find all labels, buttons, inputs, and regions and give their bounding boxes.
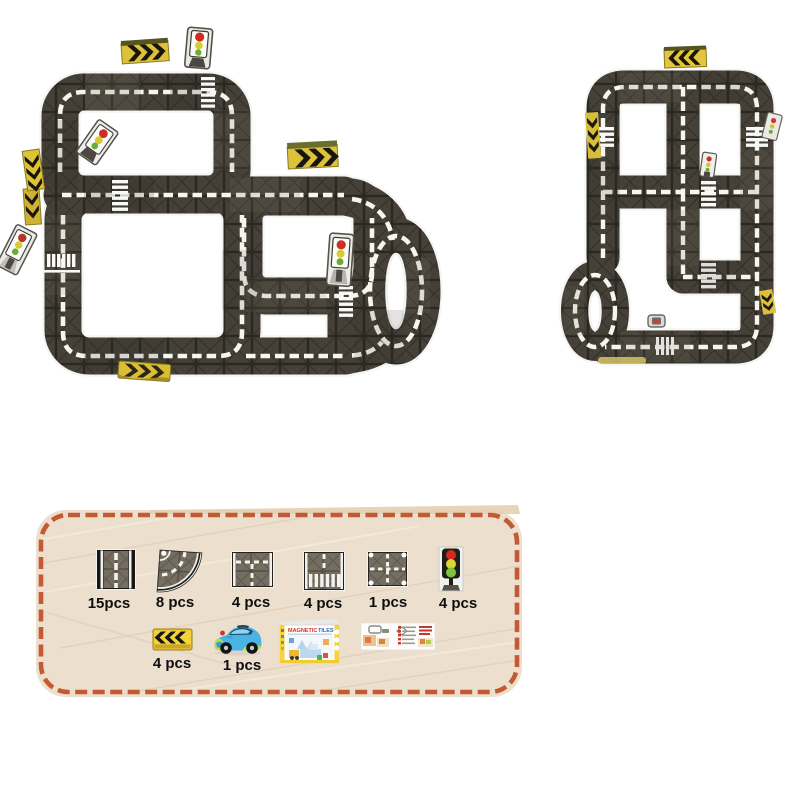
svg-text:15pcs: 15pcs — [88, 595, 131, 612]
svg-text:4 pcs: 4 pcs — [232, 594, 270, 611]
svg-text:1 pcs: 1 pcs — [369, 594, 407, 611]
svg-text:4 pcs: 4 pcs — [153, 655, 191, 672]
svg-text:MAGNETIC: MAGNETIC — [288, 628, 317, 634]
svg-text:4 pcs: 4 pcs — [304, 595, 342, 612]
svg-text:1 pcs: 1 pcs — [223, 657, 261, 674]
svg-text:8 pcs: 8 pcs — [156, 594, 194, 611]
svg-text:4 pcs: 4 pcs — [439, 595, 477, 612]
svg-text:TILES: TILES — [318, 628, 334, 634]
